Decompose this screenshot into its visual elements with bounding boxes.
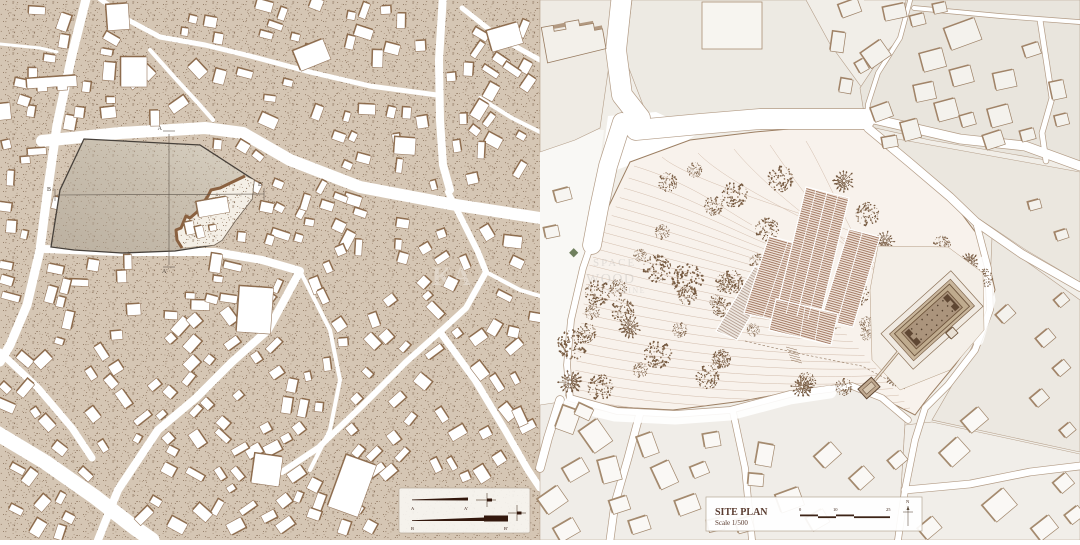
svg-text:SITE PLAN: SITE PLAN: [715, 507, 768, 518]
svg-text:WOOD: WOOD: [586, 272, 636, 287]
svg-text:Scale 1/500: Scale 1/500: [715, 519, 748, 527]
svg-text:10: 10: [833, 507, 838, 512]
svg-text:A': A': [162, 269, 167, 275]
svg-text:KA: KA: [432, 262, 471, 291]
svg-text:B: B: [47, 187, 51, 193]
svg-text:25: 25: [886, 507, 891, 512]
svg-text:SPACE: SPACE: [593, 257, 636, 269]
svg-text:B': B': [258, 182, 263, 188]
svg-text:B: B: [411, 526, 414, 531]
svg-text:AGAZINE: AGAZINE: [600, 286, 646, 295]
svg-text:B': B': [504, 526, 508, 531]
svg-text:A: A: [158, 126, 163, 132]
svg-text:A': A': [464, 506, 468, 511]
